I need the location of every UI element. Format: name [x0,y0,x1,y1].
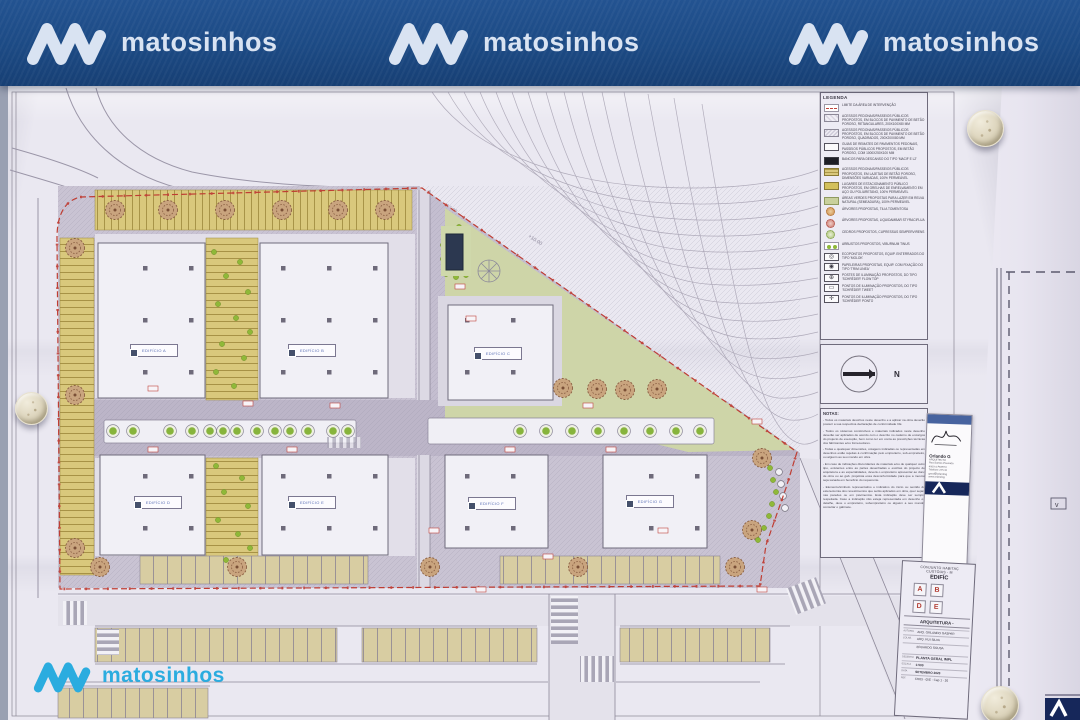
matosinhos-m-icon [26,14,106,70]
drawing-ref: CH03 - 05E - Cap 1 - 20 [915,677,949,683]
team-role-label: COLAB. [903,637,915,642]
banner-logo-text: matosinhos [883,27,1040,58]
team-role-label: AUTORIA [903,629,915,634]
north-arrow-icon [829,350,891,398]
legend-panel: LEGENDA Limite da área de intervenção Ac… [820,92,928,340]
block-letters: A B D E [912,583,958,615]
slabs-yellow-icon [824,168,839,176]
magnet [967,110,1004,147]
footer-logo-text: matosinhos [102,664,225,688]
legend-item-label: Pontos de iluminação propostos, do tipo … [842,295,925,303]
notes-title: NOTAS: [823,411,927,416]
legend-item-label: Árvores propostas, Tilia tomentosa [842,207,908,211]
note-paragraph: - Todas e quaisquer dimensões, cotagens … [823,447,925,459]
field-label: ESCALA [902,662,914,667]
radial-tree [478,260,500,282]
block-letter: A [913,583,927,597]
legend-item-label: Cedros propostos, Cupressus sempervirens [842,230,924,234]
magnet [15,392,48,425]
banner-logo-text: matosinhos [483,27,640,58]
team-member: EDUARDO SOUSA [916,645,943,650]
banner-logo-text: matosinhos [121,27,278,58]
bench-icon [824,157,839,165]
building-label-f: EDIFÍCIO F [468,497,516,510]
municipal-banner: matosinhos matosinhos matosinhos [0,0,1080,86]
matosinhos-logo: matosinhos [388,14,640,70]
legend-item-label: Postes de iluminação propostos, do tipo … [842,273,925,281]
team-role-label [902,644,914,649]
legend-item-label: Árvores propostas, Liquidambar styracifl… [842,218,925,222]
parking-yellow-icon [824,182,839,190]
building-label-a: EDIFÍCIO A [130,344,178,357]
building-label-g: EDIFÍCIO G [626,495,674,508]
light-pole-icon: ⊕ [824,274,839,282]
note-paragraph: - Todos os sistemas construtivos e mater… [823,429,925,445]
ecopoint-icon: ◎ [824,253,839,261]
legend-item-label: Ecopontos propostos, equip. enterrados d… [842,252,925,260]
building-label-d: EDIFÍCIO D [134,496,182,509]
tree-green-icon [826,230,835,239]
legend-item-label: Lugares de estacionamento público propos… [842,182,925,194]
site-plan-sheet: +12.00 +10.00 [8,84,1008,720]
building-label-c: EDIFÍCIO C [474,347,522,360]
shrubs-icon [824,242,839,250]
legend-item-label: Guias de remates de pavimentos pedonais,… [842,142,925,154]
legend-item-label: Bancos para descanso do tipo 'MACIF E L2… [842,157,917,161]
field-label: DATA [901,669,913,674]
team-member: ARQ. RUI SILVA [917,637,940,642]
architect-stamp: Orlando G ARQUITECTO Rua Santos Pousada … [921,413,972,567]
tree-orange-icon [826,207,835,216]
building-label-e: EDIFÍCIO E [288,496,336,509]
light-point-icon: ✛ [824,295,839,303]
north-arrow-box: N [820,344,928,404]
note-paragraph: - Em caso de indicações discordantes de … [823,462,925,482]
notes-panel: NOTAS: - Todos os materiais descritos ne… [820,408,928,558]
legend-item-label: Acessos pedonais/passeios públicos propo… [842,114,925,126]
legend-item-label: Papeleiras propostas, equip. com fixação… [842,263,925,271]
ecopoint-unit [446,234,463,270]
magnet [981,686,1019,720]
discipline-label: ARQUITETURA - [904,615,970,628]
matosinhos-m-icon [30,656,92,696]
legend-item-label: Acessos pedonais/passeios públicos propo… [842,167,925,179]
stamp-logo [925,482,969,497]
light-bollard-icon: ▭ [824,284,839,292]
drawing-scale: 1:500 [915,663,923,667]
paving-blocks-square-icon [824,129,839,137]
block-letter: B [930,584,944,598]
signature-icon [926,423,967,448]
legend-item-label: Limite da área de intervenção [842,103,896,107]
matosinhos-m-icon [388,14,468,70]
matosinhos-logo: matosinhos [788,14,1040,70]
field-label: REF. [901,677,913,682]
block-letter: D [912,600,926,614]
construction-sign-photo: matosinhos matosinhos matosinhos v [0,0,1080,720]
boundary-line-icon [824,104,839,112]
note-paragraph: - Elemento/símbolo representativo e indi… [823,485,925,509]
litter-bin-icon: ◉ [824,263,839,271]
lawn-green-icon [824,197,839,205]
matosinhos-m-icon [788,14,868,70]
matosinhos-logo: matosinhos [26,14,278,70]
kerb-icon [824,143,839,151]
note-paragraph: - Todos os materiais descritos neste des… [823,418,925,426]
tree-red-icon [826,219,835,228]
block-letter: E [929,601,943,615]
legend-title: LEGENDA [821,93,927,101]
north-label: N [894,370,900,379]
legend-item-label: Pontos de iluminação propostos, do tipo … [842,284,925,292]
title-block: CONJUNTO HABITAÇ CUSTÓIAS - M EDIFÍC A B… [894,560,976,720]
v-mark: v [1055,502,1059,509]
field-label: DESENHO [902,655,914,660]
legend-item-label: Acessos pedonais/passeios públicos propo… [842,128,925,140]
paving-blocks-rect-icon [824,114,839,122]
sheet-footer-logo: matosinhos [30,656,225,696]
building-label-b: EDIFÍCIO B [288,344,336,357]
stamp-line: www.orlandog [928,477,967,481]
legend-item-label: Arbustos propostos, Viburnum tinus [842,242,910,246]
legend-item-label: Áreas verdes propostas para lazer em rel… [842,196,925,204]
corner-logo-fragment [1045,694,1080,720]
